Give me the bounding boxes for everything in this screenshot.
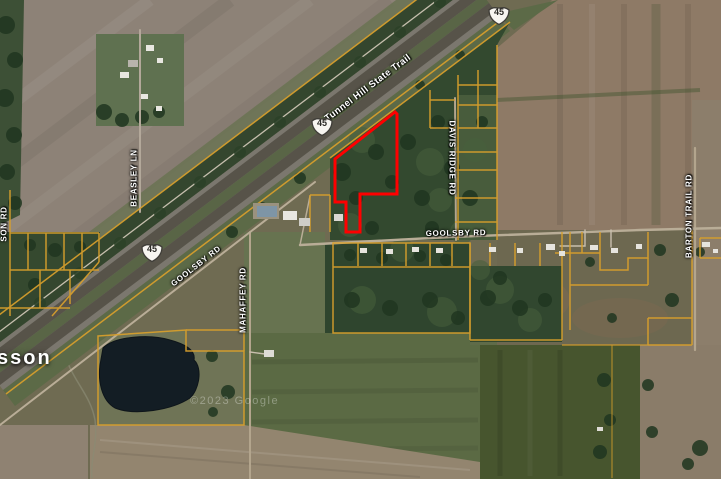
- pond: [99, 337, 199, 412]
- satellite-parcel-map[interactable]: sson ©2023 Google Tunnel Hill State Trai…: [0, 0, 721, 479]
- davis-ridge-rd-road: [455, 98, 456, 240]
- map-canvas: [0, 0, 721, 479]
